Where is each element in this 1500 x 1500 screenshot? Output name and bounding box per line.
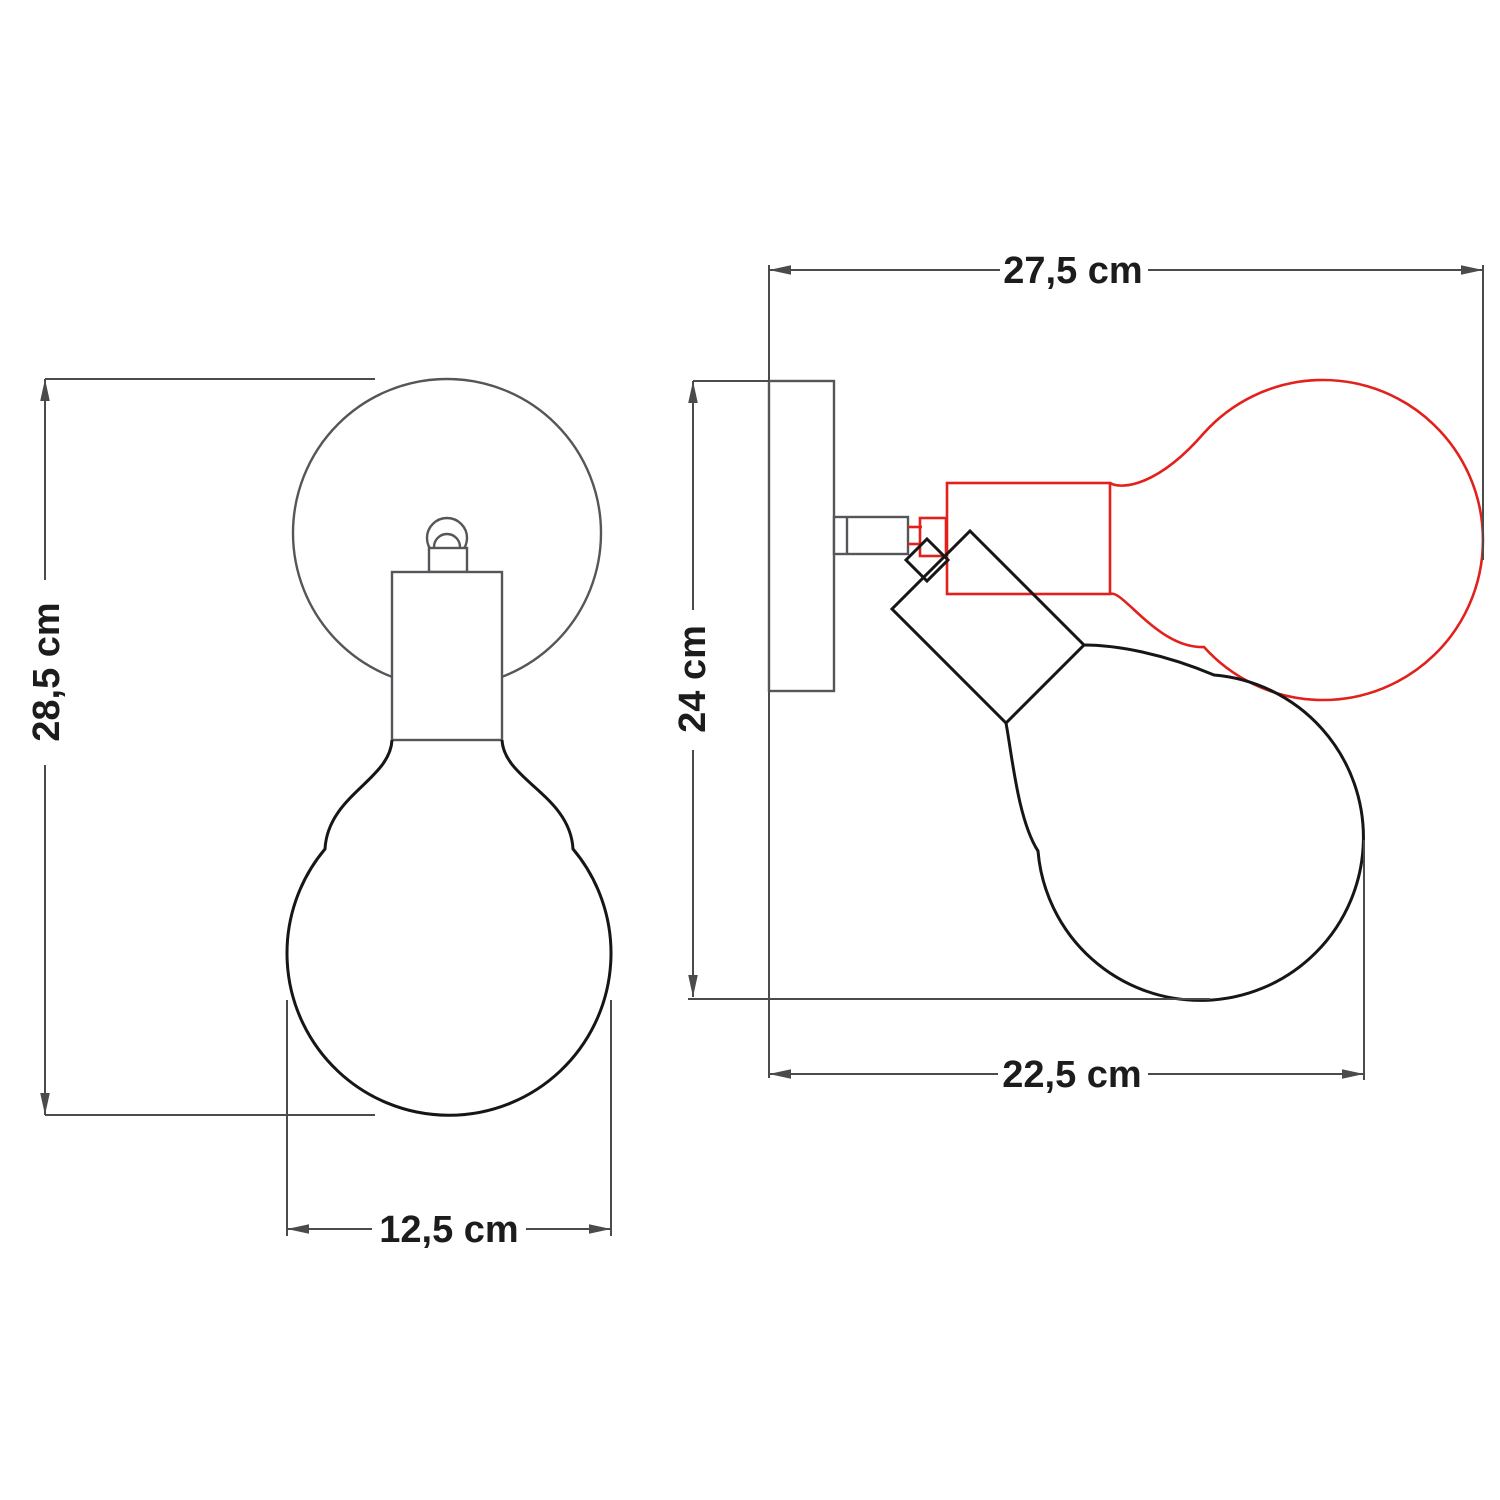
diagram-stage: 28,5 cm 12,5 cm 27, [0, 0, 1500, 1500]
lamp-neck-front [429, 548, 467, 572]
side-width-label: 22,5 cm [1002, 1054, 1141, 1096]
dimension-front-width: 12,5 cm [287, 1000, 611, 1251]
lamp-socket-front [392, 572, 502, 740]
tilted-position-black [892, 531, 1363, 1000]
tilted-socket [892, 531, 1084, 723]
alternate-position-red [908, 380, 1483, 700]
red-socket-horizontal [947, 483, 1110, 594]
front-view [287, 379, 611, 1115]
wall-plate-side [769, 381, 834, 691]
wall-lamp-dimension-drawing: 28,5 cm 12,5 cm 27, [0, 0, 1500, 1500]
globe-bulb-front [287, 740, 611, 1115]
swivel-arm [834, 517, 908, 554]
dimension-front-height: 28,5 cm [26, 379, 375, 1115]
red-hinge-block [920, 518, 946, 556]
side-depth-label: 27,5 cm [1003, 250, 1142, 292]
side-height-label: 24 cm [672, 625, 714, 733]
side-view [769, 265, 1483, 1078]
dimension-side-height: 24 cm [672, 381, 1210, 999]
front-height-label: 28,5 cm [26, 602, 68, 741]
dimension-side-depth: 27,5 cm [769, 250, 1483, 560]
red-globe-bulb [1110, 380, 1483, 700]
dimension-side-width: 22,5 cm [769, 840, 1364, 1096]
front-width-label: 12,5 cm [379, 1209, 518, 1251]
